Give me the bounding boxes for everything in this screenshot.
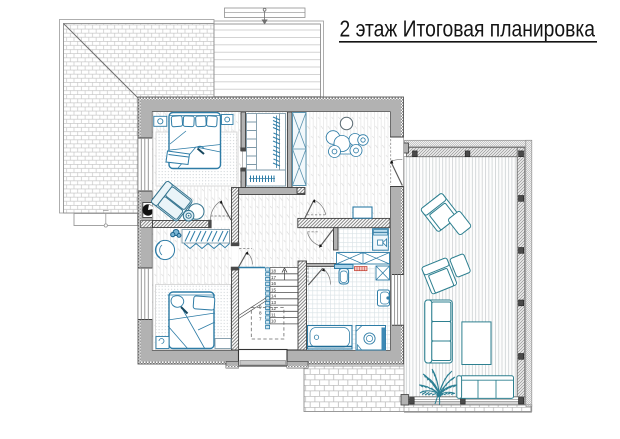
svg-text:17: 17 [271,275,277,280]
svg-text:18: 18 [271,269,277,274]
svg-text:14: 14 [271,294,277,299]
svg-text:10: 10 [271,319,277,324]
svg-text:8: 8 [259,311,262,316]
svg-text:15: 15 [271,288,277,293]
svg-text:12: 12 [271,306,277,311]
svg-text:11: 11 [271,313,276,318]
svg-text:16: 16 [271,281,277,286]
svg-text:7: 7 [259,317,262,322]
svg-text:2 этаж Итоговая планировка: 2 этаж Итоговая планировка [340,16,596,42]
svg-text:13: 13 [271,300,277,305]
